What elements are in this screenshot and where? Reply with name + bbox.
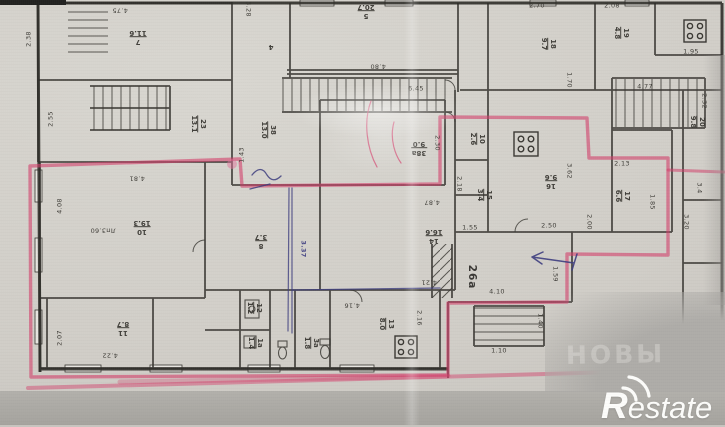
dim-label: 2.70 [529,2,545,9]
dim-label: 4.21 [421,278,437,285]
dim-label: 4.16 [344,301,360,308]
dim-label: 3.37 [299,240,306,257]
room-label: 194.8 [613,27,629,39]
room-label: 520.7 [357,3,374,19]
plan-labels-layer: 711.62313.14520.73813.038а9.0189.7194.82… [0,0,725,425]
dim-label: 1.55 [462,224,478,231]
dim-label: 4.22 [102,351,118,358]
room-label: 1019.3 [133,219,150,235]
dim-label: 1.40 [536,313,543,329]
entrance-label: 26а [465,265,477,290]
dim-label: 4.75 [112,6,128,13]
dim-label: 6.45 [408,85,424,92]
dim-label: Лп3.60 [90,226,115,233]
dim-label: 4.77 [637,83,653,90]
dim-label: 4.10 [489,288,505,295]
dim-label: 2.16 [415,310,422,326]
room-label: 83.7 [255,233,267,249]
dim-label: 3.20 [682,214,689,230]
room-label: 2313.1 [190,115,206,132]
room-label: 3813.0 [260,121,276,138]
room-label: 102.6 [469,133,485,145]
restate-logo: Restate [601,385,712,427]
dim-label: 2.08 [604,2,620,9]
room-label: 38а9.0 [411,140,427,156]
dim-label: 1.95 [683,48,699,55]
room-label: 153.4 [476,189,492,201]
room-label: 138.0 [378,318,394,330]
dim-label: 4.81 [129,174,145,181]
room-label: 3а1.8 [303,337,319,349]
dim-label: 4.80 [370,62,386,69]
dim-label: 2.07 [56,330,63,346]
dim-label: 2.18 [455,176,462,192]
dim-label: 2.13 [614,160,630,167]
dim-label: 1.10 [491,347,507,354]
dim-label: 1.70 [565,72,572,88]
room-label: 1а1.4 [247,337,263,349]
scan-paper-background: 711.62313.14520.73813.038а9.0189.7194.82… [0,0,725,425]
dim-label: 1.85 [648,194,655,210]
room-label: 711.6 [129,29,146,45]
room-label: 189.7 [540,38,556,50]
room-label: 121.2 [246,302,262,314]
dim-label: 2.50 [541,222,557,229]
dim-label: 2.00 [585,214,592,230]
dim-label: 3.4 [695,182,702,193]
dim-label: 2.30 [433,135,440,151]
room-label: 4 [268,42,275,50]
dim-label: 2.55 [47,111,54,127]
room-label: 1416.6 [425,228,442,244]
dim-label: 3.62 [565,163,572,179]
dim-label: 1.43 [238,147,245,163]
scanned-floorplan-photo: { "document_type": "floor-plan-scan", "e… [0,0,725,425]
dim-label: 4.08 [56,198,63,214]
signal-waves-icon [621,374,653,410]
dim-label: 3.28 [244,1,251,17]
room-label: 118.7 [117,320,129,336]
dim-label: 2.38 [25,31,32,47]
dim-label: 2. [40,415,50,424]
dim-label: 2.32 [700,93,707,109]
room-label: 169.6 [545,173,557,189]
dim-label: 1.59 [551,266,558,282]
dim-label: 4.87 [424,198,440,205]
room-label: 176.6 [614,190,630,202]
room-label: 209.8 [689,116,705,128]
